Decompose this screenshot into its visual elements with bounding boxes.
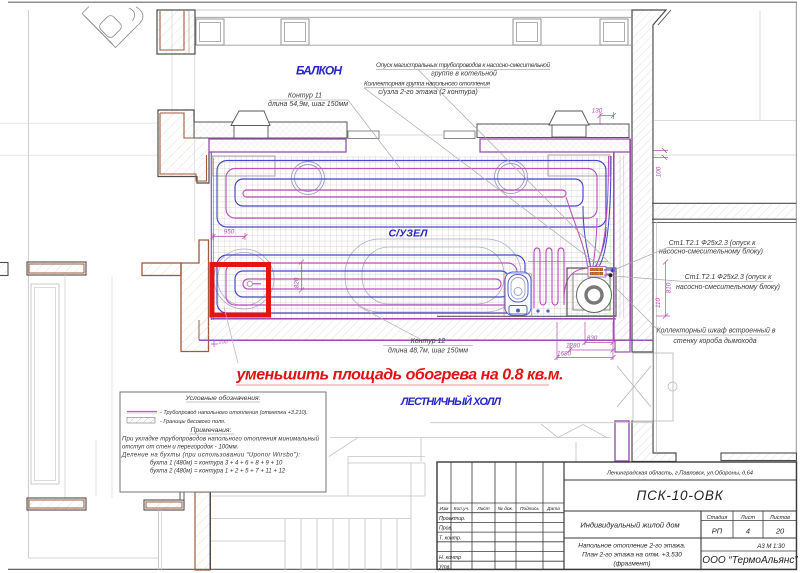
svg-text:Напольное отопление 2-го этажа: Напольное отопление 2-го этажа. <box>578 543 686 550</box>
svg-text:БАЛКОН: БАЛКОН <box>296 64 342 78</box>
svg-text:бухта 1 (480м) = контура 3 + 4: бухта 1 (480м) = контура 3 + 4 + 6 + 8 +… <box>150 461 283 467</box>
svg-text:Ст1.Т2.1 Ф25х2.3 (опуск к: Ст1.Т2.1 Ф25х2.3 (опуск к <box>669 240 757 247</box>
svg-text:810: 810 <box>666 282 673 293</box>
svg-text:4: 4 <box>746 527 750 536</box>
svg-text:Подпись: Подпись <box>520 506 540 512</box>
svg-text:Изм: Изм <box>440 506 450 512</box>
svg-text:100: 100 <box>218 340 228 346</box>
svg-text:насосно-смесительному блоку): насосно-смесительному блоку) <box>676 283 780 291</box>
svg-text:Примечания:: Примечания: <box>191 427 232 434</box>
svg-text:110: 110 <box>655 297 662 308</box>
svg-text:- Границы бесового поля.: - Границы бесового поля. <box>160 419 226 425</box>
svg-text:(фрагмент): (фрагмент) <box>613 561 650 568</box>
svg-text:Ст1.Т2.1 Ф25х2.3 (опуск к: Ст1.Т2.1 Ф25х2.3 (опуск к <box>685 274 773 281</box>
svg-text:Лист: Лист <box>740 515 756 521</box>
svg-text:С/УЗЕЛ: С/УЗЕЛ <box>389 228 429 240</box>
svg-text:При укладке трубопроводов напо: При укладке трубопроводов напольного ото… <box>122 436 320 443</box>
svg-text:1280: 1280 <box>566 343 581 350</box>
svg-text:Пров.: Пров. <box>439 526 453 532</box>
svg-text:20: 20 <box>775 527 785 536</box>
svg-text:- Трубопровод напольного отопл: - Трубопровод напольного отопления (отме… <box>160 410 308 416</box>
svg-text:Контур 12: Контур 12 <box>411 338 446 345</box>
svg-text:насосно-смесительному блоку): насосно-смесительному блоку) <box>659 248 763 256</box>
svg-text:830: 830 <box>587 335 598 342</box>
svg-text:Деление на бухты (при использо: Деление на бухты (при использовании “Upo… <box>121 453 300 459</box>
svg-text:Т. контр.: Т. контр. <box>439 535 461 541</box>
svg-text:950: 950 <box>224 229 235 236</box>
svg-text:отступ от стен и перегородок -: отступ от стен и перегородок - 100мм. <box>122 445 238 451</box>
svg-text:1680: 1680 <box>557 351 572 358</box>
svg-text:Дата: Дата <box>546 506 560 512</box>
svg-text:стенку короба дымохода: стенку короба дымохода <box>673 337 756 345</box>
svg-text:длина 48,7м, шаг 150мм: длина 48,7м, шаг 150мм <box>388 347 468 355</box>
svg-text:Коллекторный шкаф встроенный в: Коллекторный шкаф встроенный в <box>657 327 776 335</box>
svg-text:План 2-го этажа на отм. +3,530: План 2-го этажа на отм. +3,530 <box>582 552 682 559</box>
svg-text:ЛЕСТНИЧНЫЙ ХОЛЛ: ЛЕСТНИЧНЫЙ ХОЛЛ <box>400 395 502 408</box>
svg-text:Индивидуальный жилой дом: Индивидуальный жилой дом <box>580 521 679 530</box>
svg-text:Опуск магистральных трубопрово: Опуск магистральных трубопроводов к насо… <box>376 61 550 69</box>
svg-text:130: 130 <box>592 108 603 115</box>
svg-text:группе в котельной: группе в котельной <box>431 70 497 78</box>
svg-text:ПСК-10-ОВК: ПСК-10-ОВК <box>637 488 724 503</box>
svg-text:Контур 11: Контур 11 <box>288 93 322 100</box>
svg-text:уменьшить площадь обогрева на: уменьшить площадь обогрева на 0.8 кв.м. <box>236 367 564 384</box>
svg-text:бухта 2 (480м) = контура 1 + 2: бухта 2 (480м) = контура 1 + 2 + 5 + 7 +… <box>150 469 286 475</box>
svg-text:Коллекторная группа напольного: Коллекторная группа напольного отопления <box>364 81 491 88</box>
svg-text:Стадия: Стадия <box>707 515 728 521</box>
svg-text:Кол.уч.: Кол.уч. <box>454 506 470 512</box>
svg-text:ООО “ТермоАльянс”: ООО “ТермоАльянс” <box>702 555 798 566</box>
svg-text:Условные обозначения:: Условные обозначения: <box>184 394 260 402</box>
svg-text:А3 М 1:30: А3 М 1:30 <box>756 544 785 550</box>
svg-text:100: 100 <box>656 166 663 177</box>
svg-text:Ленинградская область, г.Павл: Ленинградская область, г.Павловск, ул.Об… <box>606 471 753 477</box>
svg-text:Проектир.: Проектир. <box>439 516 465 522</box>
svg-text:длина 54,9м, шаг 150мм: длина 54,9м, шаг 150мм <box>268 100 348 108</box>
svg-text:Н. контр: Н. контр <box>439 555 461 561</box>
svg-text:Утв.: Утв. <box>439 565 451 571</box>
svg-text:№ док.: № док. <box>498 506 513 512</box>
svg-text:Лист: Лист <box>476 506 489 512</box>
svg-text:820: 820 <box>294 277 301 288</box>
svg-text:с/узла 2-го этажа (2 контура): с/узла 2-го этажа (2 контура) <box>378 89 478 96</box>
svg-text:Листов: Листов <box>769 515 790 521</box>
svg-text:РП: РП <box>712 527 723 536</box>
